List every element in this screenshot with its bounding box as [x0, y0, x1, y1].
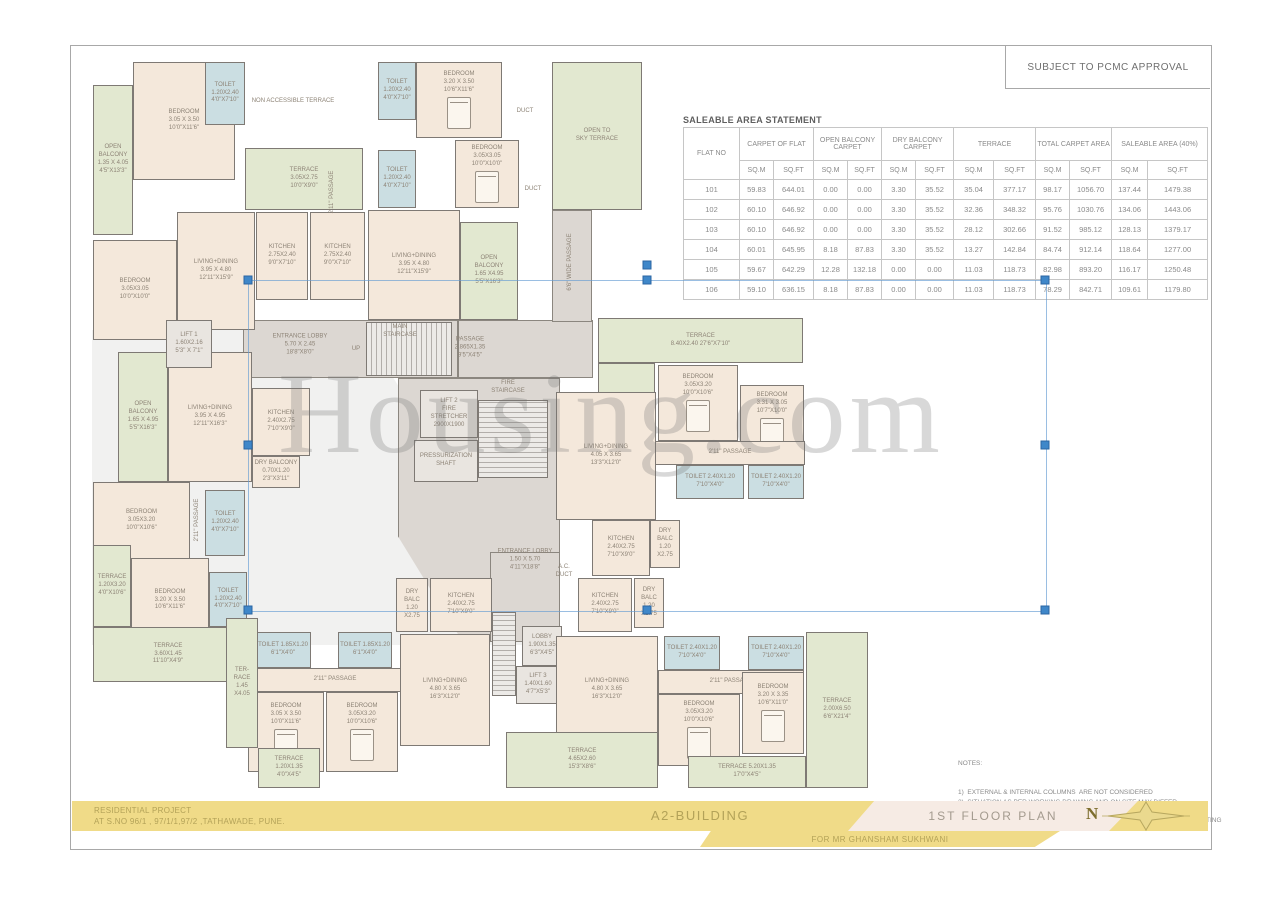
project-line1: RESIDENTIAL PROJECT: [94, 806, 285, 817]
table-col-header: OPEN BALCONY CARPET: [814, 128, 882, 161]
table-row: 10260.10646.920.000.003.3035.5232.36348.…: [684, 200, 1208, 220]
selection-handle[interactable]: [244, 441, 253, 450]
room-bedroom: BEDROOM3.05X3.0510'0"X10'0": [455, 140, 519, 208]
table-row: 10360.10646.920.000.003.3035.5228.12302.…: [684, 220, 1208, 240]
project-line2: AT S.NO 96/1 , 97/1/1,97/2 ,TATHAWADE, P…: [94, 817, 285, 828]
north-label: N: [1086, 804, 1098, 824]
table-cell: 28.12: [954, 220, 994, 240]
room-toilet: TOILET1.20X2.404'0"X7'10": [378, 62, 416, 120]
table-cell: 1479.38: [1148, 180, 1208, 200]
room-terrace: TERRACE3.05X2.7510'0"X9'0": [245, 148, 363, 210]
room-lift-2: LIFT 2FIRESTRETCHER2900X1900: [420, 390, 478, 438]
plan-label: 2'11" PASSAGE: [329, 171, 337, 214]
table-cell: 32.36: [954, 200, 994, 220]
room-dry-balcony: DRYBALC1.20X2.75: [396, 578, 428, 632]
room-toilet: TOILET1.20X2.404'0"X7'10": [378, 150, 416, 208]
unit-header: SQ.FT: [848, 161, 882, 180]
table-row: 10659.10636.158.1887.830.000.0011.03118.…: [684, 280, 1208, 300]
table-cell: 91.52: [1036, 220, 1070, 240]
room-bedroom: BEDROOM3.05X3.0510'0"X10'0": [93, 240, 177, 340]
note-line: 1) EXTERNAL & INTERNAL COLUMNS ARE NOT C…: [958, 788, 1208, 797]
selection-handle[interactable]: [642, 276, 651, 285]
table-cell: 134.06: [1112, 200, 1148, 220]
plan-label: PASSAGE2.865X1.359'5"X4'5": [455, 336, 486, 359]
saleable-area-table: FLAT NOCARPET OF FLATOPEN BALCONY CARPET…: [683, 127, 1208, 300]
table-cell: 0.00: [916, 260, 954, 280]
table-cell: 35.52: [916, 220, 954, 240]
table-cell: 95.76: [1036, 200, 1070, 220]
client-name: FOR MR GHANSHAM SUKHWANI: [700, 831, 1060, 847]
table-cell: 101: [684, 180, 740, 200]
table-cell: 35.52: [916, 240, 954, 260]
table-cell: 59.67: [740, 260, 774, 280]
table-cell: 105: [684, 260, 740, 280]
table-cell: 0.00: [814, 180, 848, 200]
room-toilet: TOILET 2.40X1.207'10"X4'0": [748, 636, 804, 670]
table-cell: 87.83: [848, 280, 882, 300]
plan-label: FIRESTAIRCASE: [491, 380, 525, 396]
room-living-dining: LIVING+DINING3.95 X 4.8012'11"X15'9": [368, 210, 460, 320]
room-open-balcony: OPENBALCONY1.65 X4.955'5"X16'3": [460, 222, 518, 320]
table-cell: 0.00: [814, 200, 848, 220]
table-cell: 60.10: [740, 220, 774, 240]
table-cell: 12.28: [814, 260, 848, 280]
table-cell: 1250.48: [1148, 260, 1208, 280]
bed-icon: [475, 171, 499, 203]
unit-header: SQ.M: [740, 161, 774, 180]
unit-header: SQ.M: [1036, 161, 1070, 180]
client-band: FOR MR GHANSHAM SUKHWANI: [72, 831, 1208, 847]
plan-label: DUCT: [525, 186, 542, 194]
table-cell: 103: [684, 220, 740, 240]
table-cell: 985.12: [1070, 220, 1112, 240]
table-cell: 8.18: [814, 280, 848, 300]
table-cell: 11.03: [954, 280, 994, 300]
unit-header: SQ.M: [814, 161, 848, 180]
table-cell: 646.92: [774, 200, 814, 220]
table-cell: 102: [684, 200, 740, 220]
room-kitchen: KITCHEN2.40X2.757'10"X9'0": [578, 578, 632, 632]
table-col-header: CARPET OF FLAT: [740, 128, 814, 161]
bed-icon: [761, 710, 785, 742]
room-open-balcony: OPENBALCONY1.65 X 4.955'5"X16'3": [118, 352, 168, 482]
table-cell: 0.00: [814, 220, 848, 240]
table-col-header: TERRACE: [954, 128, 1036, 161]
room-kitchen: KITCHEN2.40X2.757'10"X9'0": [252, 388, 310, 456]
table-cell: 0.00: [882, 280, 916, 300]
bed-icon: [447, 97, 471, 129]
unit-header: SQ.FT: [994, 161, 1036, 180]
room-passage: 2'11" PASSAGE: [655, 441, 805, 465]
table-cell: 128.13: [1112, 220, 1148, 240]
saleable-area-statement: SALEABLE AREA STATEMENT FLAT NOCARPET OF…: [683, 115, 1207, 300]
unit-header: SQ.FT: [1070, 161, 1112, 180]
table-cell: 118.73: [994, 260, 1036, 280]
room-bedroom: BEDROOM3.05X3.2010'0"X10'6": [658, 365, 738, 441]
compass-star-icon: [1102, 799, 1192, 833]
room-dry-balcony: DRYBALC1.20X2.75: [650, 520, 680, 568]
room-living-dining: LIVING+DINING4.80 X 3.6516'3"X12'0": [400, 634, 490, 746]
table-cell: 3.30: [882, 220, 916, 240]
table-cell: 118.64: [1112, 240, 1148, 260]
table-cell: 0.00: [848, 180, 882, 200]
plan-label: 6'6" WIDE PASSAGE: [567, 233, 575, 290]
room-kitchen: KITCHEN2.40X2.757'10"X9'0": [592, 520, 650, 576]
table-row: 10460.01645.958.1887.833.3035.5213.27142…: [684, 240, 1208, 260]
room-living-dining: LIVING+DINING3.95 X 4.9512'11"X16'3": [168, 352, 252, 482]
plan-label: A.C.DUCT: [556, 564, 573, 580]
plan-label: ENTRANCE LOBBY5.70 X 2.4518'8"X8'0": [273, 333, 328, 356]
table-cell: 377.17: [994, 180, 1036, 200]
room-stair-3: [492, 612, 516, 696]
table-cell: 87.83: [848, 240, 882, 260]
room-kitchen: KITCHEN2.75X2.409'0"X7'10": [310, 212, 365, 300]
table-cell: 98.17: [1036, 180, 1070, 200]
plan-label: 2'11" PASSAGE: [194, 499, 202, 542]
room-fire-staircase: [478, 400, 548, 478]
table-cell: 302.66: [994, 220, 1036, 240]
table-col-header: SALEABLE AREA (40%): [1112, 128, 1208, 161]
table-cell: 109.61: [1112, 280, 1148, 300]
table-col-header: DRY BALCONY CARPET: [882, 128, 954, 161]
room-toilet: TOILET1.20X2.404'0"X7'10": [205, 62, 245, 125]
table-cell: 348.32: [994, 200, 1036, 220]
table-col-header: TOTAL CARPET AREA: [1036, 128, 1112, 161]
plan-label: ENTRANCE LOBBY1.50 X 5.704'11"X18'8": [498, 548, 553, 571]
unit-header: SQ.FT: [916, 161, 954, 180]
table-cell: 1277.00: [1148, 240, 1208, 260]
table-row: 10559.67642.2912.28132.180.000.0011.0311…: [684, 260, 1208, 280]
room-living-dining: LIVING+DINING4.80 X 3.6516'3"X12'0": [556, 636, 658, 744]
table-cell: 842.71: [1070, 280, 1112, 300]
room-kitchen: KITCHEN2.40X2.757'10"X9'0": [430, 578, 492, 632]
table-cell: 645.95: [774, 240, 814, 260]
room-bedroom: BEDROOM3.20 X 3.5010'6"X11'6": [416, 62, 502, 138]
bed-icon: [687, 727, 711, 759]
bed-icon: [686, 400, 710, 432]
table-cell: 116.17: [1112, 260, 1148, 280]
table-cell: 132.18: [848, 260, 882, 280]
table-cell: 13.27: [954, 240, 994, 260]
title-band: RESIDENTIAL PROJECT AT S.NO 96/1 , 97/1/…: [72, 801, 1208, 831]
table-cell: 636.15: [774, 280, 814, 300]
room-terrace: TER-RACE1.45X4.05: [226, 618, 258, 748]
room-lift-1: LIFT 11.60X2.165'3" X 7'1": [166, 320, 212, 368]
table-cell: 1056.70: [1070, 180, 1112, 200]
unit-header: SQ.FT: [1148, 161, 1208, 180]
room-open-balcony: OPENBALCONY1.35 X 4.054'5"X13'3": [93, 85, 133, 235]
room-terrace: TERRACE8.40X2.40 27'6"X7'10": [598, 318, 803, 363]
table-cell: 35.52: [916, 200, 954, 220]
table-col-header: FLAT NO: [684, 128, 740, 180]
room-dry-balcony: DRY BALCONY0.70X1.202'3"X3'11": [252, 456, 300, 488]
selection-handle[interactable]: [244, 606, 253, 615]
selection-handle[interactable]: [1041, 441, 1050, 450]
selection-handle[interactable]: [1041, 606, 1050, 615]
table-cell: 1179.80: [1148, 280, 1208, 300]
table-cell: 137.44: [1112, 180, 1148, 200]
table-cell: 11.03: [954, 260, 994, 280]
table-row: 10159.83644.010.000.003.3035.5235.04377.…: [684, 180, 1208, 200]
table-cell: 35.52: [916, 180, 954, 200]
table-cell: 106: [684, 280, 740, 300]
table-cell: 104: [684, 240, 740, 260]
unit-header: SQ.M: [1112, 161, 1148, 180]
building-name: A2-BUILDING: [620, 808, 780, 823]
room-open-to-sky-terrace: OPEN TOSKY TERRACE: [552, 62, 642, 210]
table-cell: 60.01: [740, 240, 774, 260]
floor-plan-sheet: SUBJECT TO PCMC APPROVAL OPENBALCONY1.35…: [0, 0, 1280, 905]
room-lift-3: LIFT 31.40X1.604'7"X5'3": [516, 666, 560, 704]
plan-label: DUCT: [517, 108, 534, 116]
table-cell: 1443.06: [1148, 200, 1208, 220]
room-living-dining: LIVING+DINING3.95 X 4.8012'11"X15'9": [177, 212, 255, 330]
table-cell: 912.14: [1070, 240, 1112, 260]
room-terrace: TERRACE4.65X2.6015'3"X8'6": [506, 732, 658, 788]
table-cell: 893.20: [1070, 260, 1112, 280]
plan-label: NON ACCESSIBLE TERRACE: [252, 98, 335, 106]
plan-label: UP: [352, 346, 360, 354]
table-cell: 35.04: [954, 180, 994, 200]
room-terrace: TERRACE2.00X6.506'6"X21'4": [806, 632, 868, 788]
table-cell: 1379.17: [1148, 220, 1208, 240]
north-compass-icon: N: [1078, 799, 1188, 833]
table-title: SALEABLE AREA STATEMENT: [683, 115, 1207, 125]
selection-handle[interactable]: [1041, 276, 1050, 285]
table-cell: 0.00: [882, 260, 916, 280]
room-pressurization-shaft: PRESSURIZATIONSHAFT: [414, 440, 478, 482]
table-cell: 1030.76: [1070, 200, 1112, 220]
table-cell: 0.00: [848, 200, 882, 220]
table-cell: 644.01: [774, 180, 814, 200]
unit-header: SQ.FT: [774, 161, 814, 180]
table-cell: 118.73: [994, 280, 1036, 300]
room-toilet: TOILET 2.40X1.207'10"X4'0": [676, 465, 744, 499]
unit-header: SQ.M: [954, 161, 994, 180]
room-dry-balcony: DRYBALC1.20X2.75: [634, 578, 664, 628]
table-cell: 0.00: [848, 220, 882, 240]
room-passage: 2'11" PASSAGE: [250, 668, 420, 692]
room-living-dining: LIVING+DINING4.05 X 3.6513'3"X12'0": [556, 392, 656, 520]
table-cell: 8.18: [814, 240, 848, 260]
room-toilet: TOILET 2.40X1.207'10"X4'0": [748, 465, 804, 499]
table-cell: 142.84: [994, 240, 1036, 260]
project-title: RESIDENTIAL PROJECT AT S.NO 96/1 , 97/1/…: [94, 806, 285, 828]
room-bedroom: BEDROOM3.20 X 3.3510'6"X11'0": [742, 672, 804, 754]
room-toilet: TOILET1.20X2.404'0"X7'10": [205, 490, 245, 556]
unit-header: SQ.M: [882, 161, 916, 180]
notes-heading: NOTES:: [958, 759, 1208, 768]
selection-handle[interactable]: [244, 276, 253, 285]
room-toilet: TOILET 1.85X1.206'1"X4'0": [338, 632, 392, 668]
table-cell: 3.30: [882, 180, 916, 200]
table-cell: 3.30: [882, 240, 916, 260]
bed-icon: [350, 729, 374, 761]
table-cell: 59.83: [740, 180, 774, 200]
table-cell: 84.74: [1036, 240, 1070, 260]
room-kitchen: KITCHEN2.75X2.409'0"X7'10": [256, 212, 308, 300]
table-cell: 0.00: [916, 280, 954, 300]
table-cell: 59.10: [740, 280, 774, 300]
table-cell: 646.92: [774, 220, 814, 240]
room-terrace: TERRACE 5.20X1.3517'0"X4'5": [688, 756, 806, 788]
table-cell: 642.29: [774, 260, 814, 280]
room-terrace: TERRACE3.60X1.4511'10"X4'9": [93, 627, 243, 682]
room-toilet: TOILET 2.40X1.207'10"X4'0": [664, 636, 720, 670]
room-bedroom: BEDROOM3.05X3.2010'0"X10'6": [326, 692, 398, 772]
selection-rotation-handle[interactable]: [642, 261, 651, 270]
table-cell: 3.30: [882, 200, 916, 220]
plan-label: MAINSTAIRCASE: [383, 324, 417, 340]
room-toilet: TOILET 1.85X1.206'1"X4'0": [255, 632, 311, 668]
table-cell: 60.10: [740, 200, 774, 220]
room-terrace: TERRACE1.20X3.204'0"X10'6": [93, 545, 131, 627]
room-terrace: TERRACE1.20X1.354'0"X4'5": [258, 748, 320, 788]
selection-handle[interactable]: [642, 606, 651, 615]
